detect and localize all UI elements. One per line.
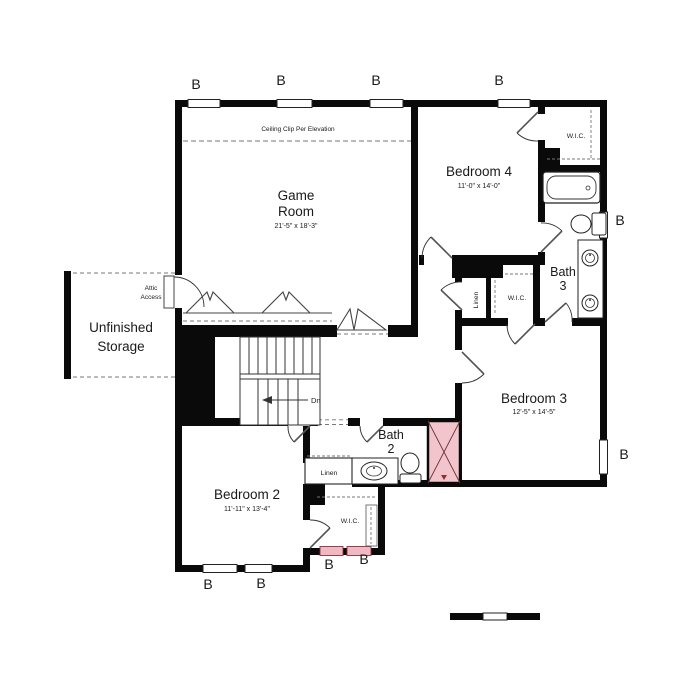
unfinished-storage-area bbox=[64, 271, 71, 379]
window bbox=[600, 440, 608, 474]
window-marker-b: B bbox=[276, 72, 285, 88]
closet-shelf bbox=[366, 505, 377, 546]
toilet-bath3 bbox=[571, 213, 606, 235]
double-door-leaf bbox=[354, 309, 386, 330]
door-leaf bbox=[431, 237, 452, 258]
bathtub bbox=[543, 172, 600, 203]
door-swing bbox=[517, 133, 538, 141]
bedroom3-dims: 12'-5" x 14'-5" bbox=[512, 409, 556, 416]
fixtures bbox=[305, 172, 606, 546]
bath3-label: Bath bbox=[550, 265, 576, 279]
bath2-label: 2 bbox=[388, 442, 395, 456]
bath2-label: Bath bbox=[378, 428, 404, 442]
window bbox=[203, 565, 237, 573]
shower-bath2 bbox=[428, 421, 460, 483]
window bbox=[277, 100, 312, 108]
attic-door-leaf bbox=[164, 276, 174, 308]
window-marker-b: B bbox=[359, 551, 368, 567]
double-door-leaf bbox=[337, 309, 354, 330]
window-marker-b: B bbox=[324, 556, 333, 572]
bedroom4-dims: 11'-0" x 14'-0" bbox=[458, 183, 501, 190]
door-leaf bbox=[310, 528, 330, 548]
bedroom2-label: Bedroom 2 bbox=[214, 487, 280, 502]
door-swing bbox=[422, 237, 431, 258]
door-leaf bbox=[517, 112, 538, 133]
window-marker-b: B bbox=[494, 72, 503, 88]
game-room-label: Game bbox=[278, 188, 315, 203]
door-leaf bbox=[515, 324, 535, 344]
bedroom2-dims: 11'-11" x 13'-4" bbox=[224, 506, 270, 513]
door-swing bbox=[441, 282, 462, 290]
linen-label: Linen bbox=[473, 291, 480, 308]
door-swing bbox=[174, 277, 204, 307]
toilet-bath2 bbox=[400, 453, 421, 483]
bedroom4-label: Bedroom 4 bbox=[446, 164, 513, 179]
wic-label: W.I.C. bbox=[341, 518, 360, 525]
door-swing bbox=[566, 303, 572, 322]
door-leaf bbox=[441, 290, 462, 310]
game-room-label: Room bbox=[278, 204, 314, 219]
door-swing bbox=[507, 324, 515, 344]
door-swing bbox=[310, 520, 330, 528]
door-swing bbox=[288, 426, 294, 442]
door-swing bbox=[360, 426, 367, 442]
door-swing bbox=[462, 374, 484, 383]
floor-plan-drawing: Game Room 21'-5" x 18'-3" Bedroom 4 11'-… bbox=[0, 0, 693, 678]
wic-label: W.I.C. bbox=[567, 133, 586, 140]
linen-label: Linen bbox=[321, 470, 338, 477]
floor-plan-page: Game Room 21'-5" x 18'-3" Bedroom 4 11'-… bbox=[0, 0, 693, 678]
door-leaf bbox=[462, 352, 484, 374]
bifold-doors bbox=[183, 292, 332, 313]
door-swing bbox=[541, 223, 562, 231]
attic-access-label: Attic bbox=[145, 285, 158, 292]
scale-bar bbox=[450, 613, 540, 620]
bath3-label: 3 bbox=[560, 279, 567, 293]
staircase bbox=[240, 337, 320, 425]
window bbox=[245, 565, 272, 573]
unfinished-storage-label: Unfinished bbox=[89, 320, 153, 335]
game-room-dims: 21'-5" x 18'-3" bbox=[274, 223, 318, 230]
ceiling-clip-label: Ceiling Clip Per Elevation bbox=[261, 126, 335, 133]
stairs-down-label: Dn bbox=[311, 396, 321, 405]
unfinished-storage-label: Storage bbox=[97, 339, 144, 354]
door-leaf bbox=[541, 231, 562, 252]
window bbox=[370, 100, 403, 108]
vanity-bath3 bbox=[578, 240, 603, 318]
vanity-bath2 bbox=[352, 458, 398, 484]
wic-label: W.I.C. bbox=[508, 295, 527, 302]
window-marker-b: B bbox=[615, 212, 624, 228]
cased-opening bbox=[318, 420, 348, 425]
bedroom3-label: Bedroom 3 bbox=[501, 391, 567, 406]
window-marker-b: B bbox=[371, 72, 380, 88]
window bbox=[188, 100, 220, 108]
window-marker-b: B bbox=[191, 76, 200, 92]
attic-access-label: Access bbox=[141, 294, 163, 301]
highlighted-window bbox=[320, 547, 343, 556]
door-leaf bbox=[545, 303, 566, 322]
window-marker-b: B bbox=[619, 446, 628, 462]
window-marker-b: B bbox=[256, 575, 265, 591]
window-marker-b: B bbox=[203, 576, 212, 592]
window bbox=[498, 100, 530, 108]
